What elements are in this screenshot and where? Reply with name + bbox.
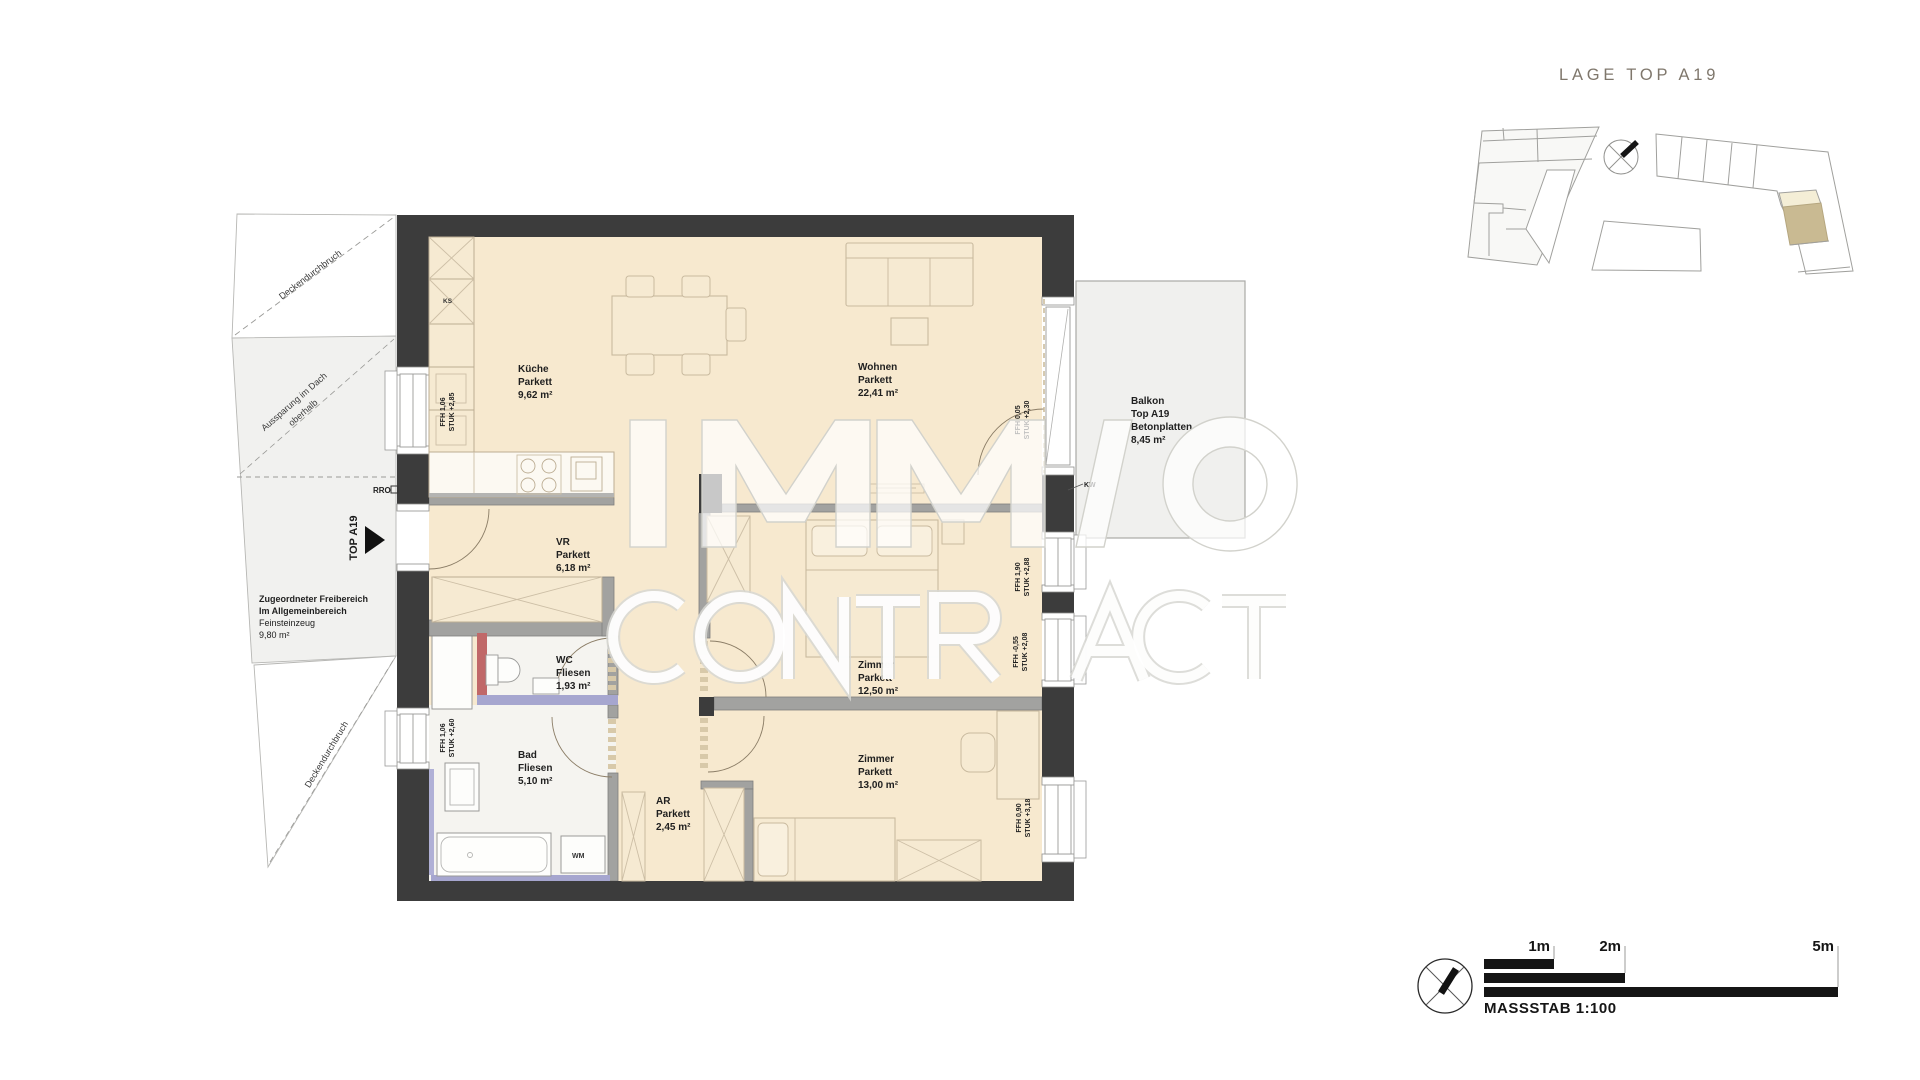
svg-text:STUK +2,85: STUK +2,85 xyxy=(449,393,456,432)
svg-text:9,62 m²: 9,62 m² xyxy=(518,390,553,401)
svg-text:MASSSTAB 1:100: MASSSTAB 1:100 xyxy=(1484,1000,1617,1017)
svg-text:STUK +2,08: STUK +2,08 xyxy=(1022,633,1029,672)
svg-text:1m: 1m xyxy=(1528,938,1550,955)
svg-text:12,50 m²: 12,50 m² xyxy=(858,686,899,697)
svg-text:Fliesen: Fliesen xyxy=(518,763,552,774)
svg-text:Parkett: Parkett xyxy=(858,375,893,386)
svg-text:Feinsteinzeug: Feinsteinzeug xyxy=(259,618,315,628)
svg-text:STUK +2,88: STUK +2,88 xyxy=(1024,558,1031,597)
svg-text:13,00 m²: 13,00 m² xyxy=(858,780,899,791)
svg-text:WM: WM xyxy=(572,853,585,860)
svg-text:Parkett: Parkett xyxy=(556,550,591,561)
svg-text:8,45 m²: 8,45 m² xyxy=(1131,435,1166,446)
svg-text:Parkett: Parkett xyxy=(518,377,553,388)
svg-text:FFH 1,90: FFH 1,90 xyxy=(1015,562,1022,591)
svg-text:Küche: Küche xyxy=(518,364,549,375)
svg-text:TOP A19: TOP A19 xyxy=(348,515,360,560)
svg-text:KS: KS xyxy=(443,298,453,305)
svg-text:6,18 m²: 6,18 m² xyxy=(556,563,591,574)
svg-text:RRO: RRO xyxy=(373,486,391,495)
svg-text:Zugeordneter Freibereich: Zugeordneter Freibereich xyxy=(259,594,368,604)
svg-text:2,45 m²: 2,45 m² xyxy=(656,822,691,833)
svg-text:FFH 1,06: FFH 1,06 xyxy=(440,723,447,752)
svg-text:STUK +2,60: STUK +2,60 xyxy=(449,719,456,758)
svg-text:Im Allgemeinbereich: Im Allgemeinbereich xyxy=(259,606,347,616)
svg-text:9,80 m²: 9,80 m² xyxy=(259,630,290,640)
svg-text:STUK +3,18: STUK +3,18 xyxy=(1025,799,1032,838)
svg-text:Wohnen: Wohnen xyxy=(858,362,897,373)
svg-text:Parkett: Parkett xyxy=(656,809,691,820)
svg-text:FFH -0,55: FFH -0,55 xyxy=(1013,636,1020,668)
svg-text:LAGE TOP A19: LAGE TOP A19 xyxy=(1559,66,1719,84)
svg-text:Top A19: Top A19 xyxy=(1131,409,1170,420)
svg-text:Zimmer: Zimmer xyxy=(858,754,894,765)
svg-text:FFH 1,06: FFH 1,06 xyxy=(440,397,447,426)
svg-text:5m: 5m xyxy=(1812,938,1834,955)
svg-text:1,93 m²: 1,93 m² xyxy=(556,681,591,692)
svg-text:WC: WC xyxy=(556,655,573,666)
svg-text:22,41 m²: 22,41 m² xyxy=(858,388,899,399)
svg-text:Betonplatten: Betonplatten xyxy=(1131,422,1192,433)
svg-text:AR: AR xyxy=(656,796,671,807)
svg-text:VR: VR xyxy=(556,537,571,548)
svg-text:2m: 2m xyxy=(1599,938,1621,955)
svg-text:Balkon: Balkon xyxy=(1131,396,1164,407)
svg-text:Fliesen: Fliesen xyxy=(556,668,590,679)
svg-text:Parkett: Parkett xyxy=(858,767,893,778)
svg-text:Bad: Bad xyxy=(518,750,537,761)
svg-text:5,10 m²: 5,10 m² xyxy=(518,776,553,787)
svg-text:FFH 0,90: FFH 0,90 xyxy=(1016,803,1023,832)
